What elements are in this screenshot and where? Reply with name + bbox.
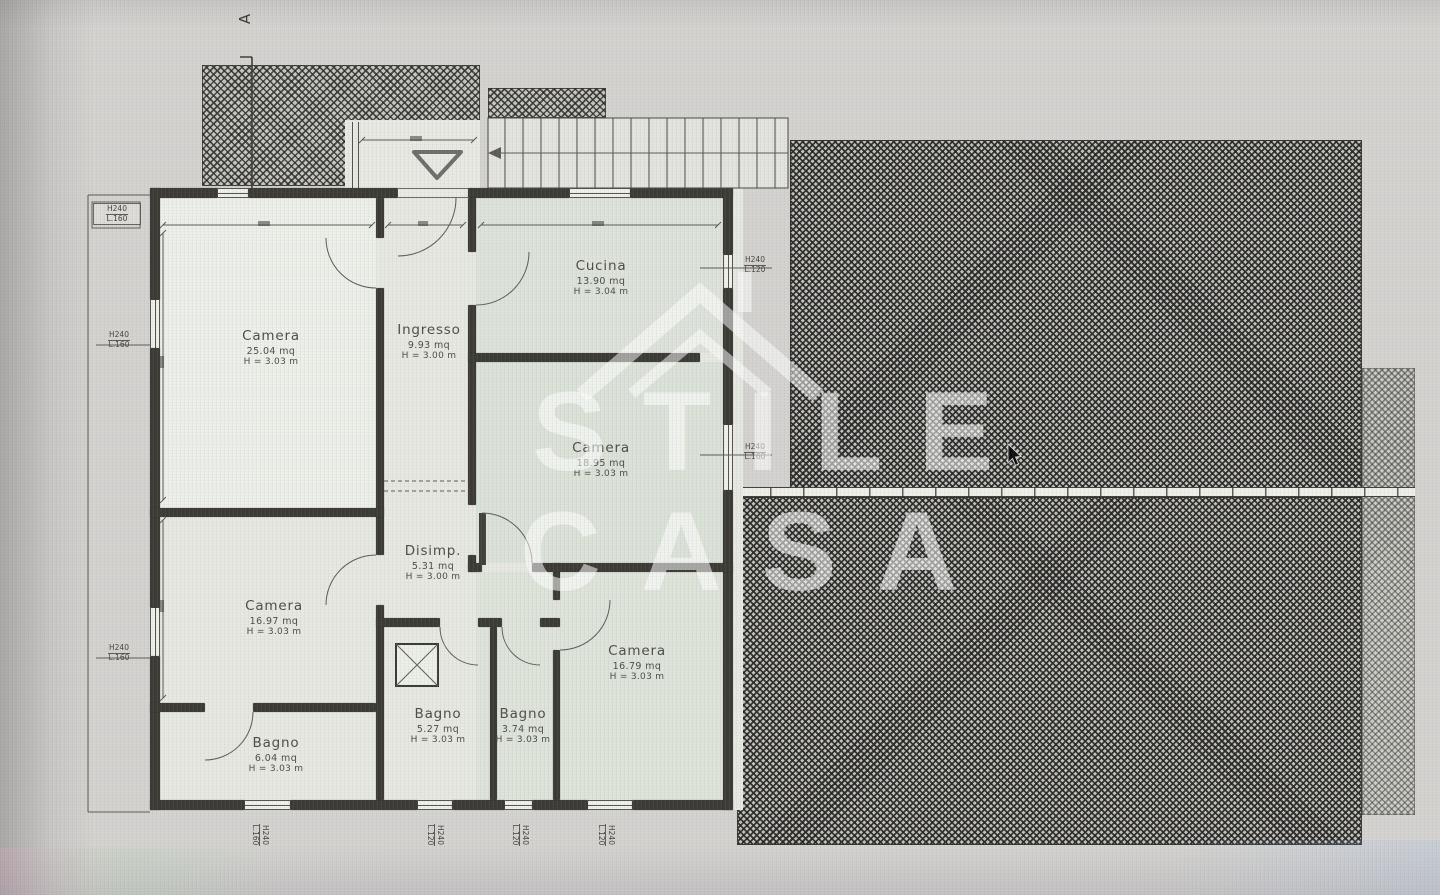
floor-plan-canvas[interactable]: Camera25.04 mqH = 3.03 m Ingresso9.93 mq… [0, 0, 1440, 895]
mouse-cursor [0, 0, 1440, 895]
